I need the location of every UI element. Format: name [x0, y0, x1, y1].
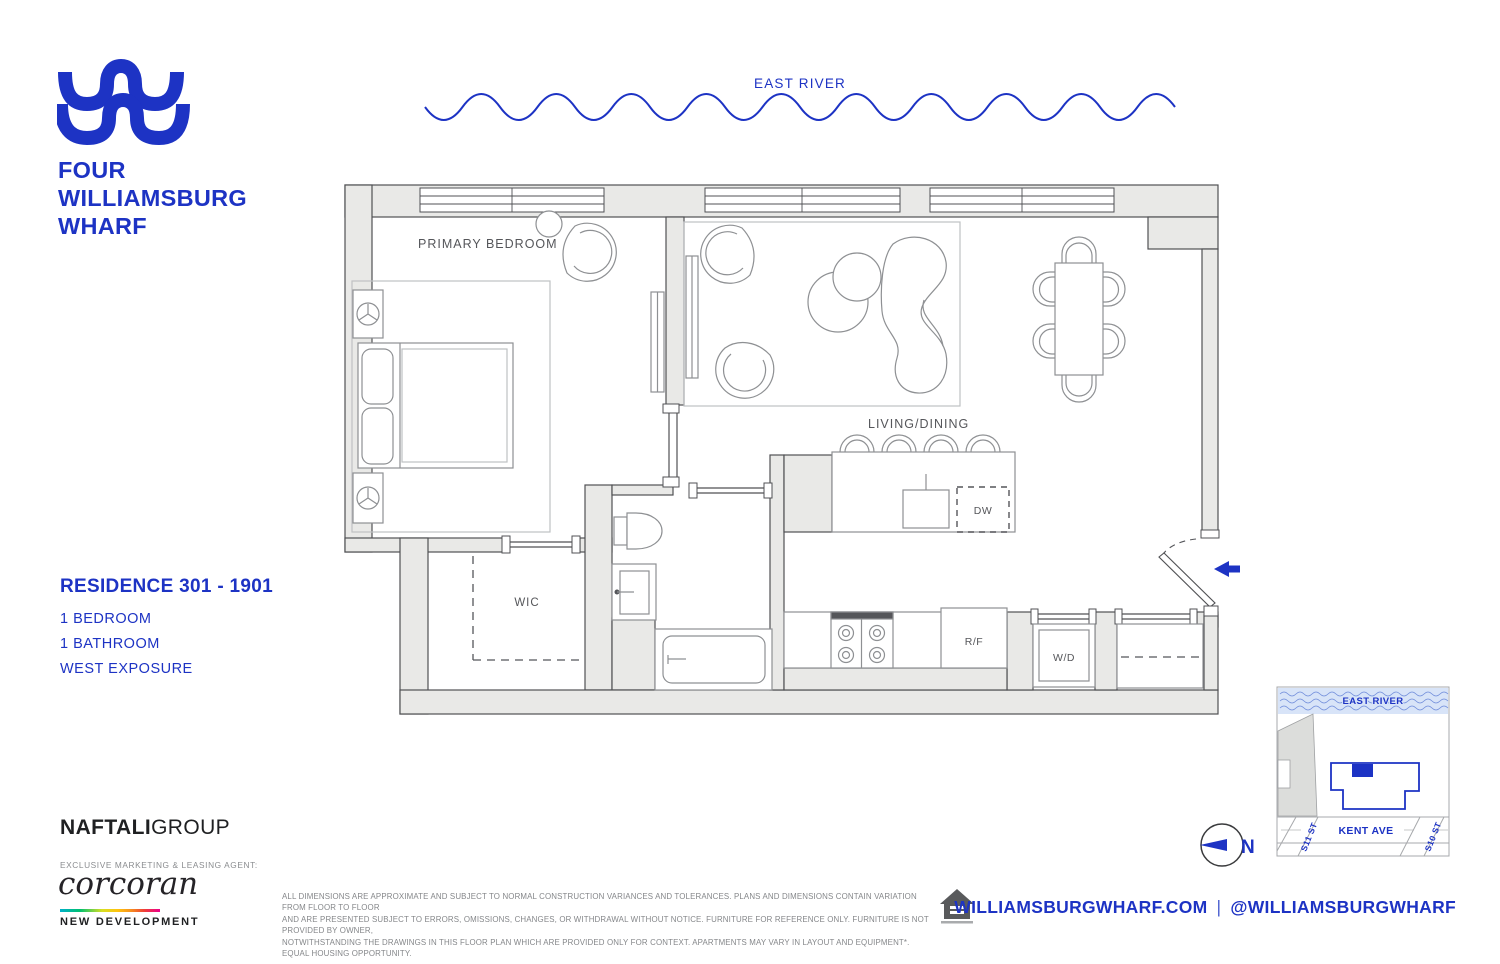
living-furniture	[684, 222, 960, 406]
map-east-river-label: EAST RIVER	[1342, 696, 1403, 707]
entry-arrow-icon	[1214, 561, 1240, 577]
window-living-2	[930, 188, 1114, 212]
developer-logo: NAFTALIGROUP	[60, 816, 230, 840]
coffee-table-small	[833, 253, 881, 301]
brand-name: FOUR WILLIAMSBURG WHARF	[58, 156, 247, 240]
bed	[358, 343, 513, 468]
disclaimer-line: AND ARE PRESENTED SUBJECT TO ERRORS, OMI…	[282, 914, 937, 937]
wall-partition-rf-wd	[1007, 612, 1033, 690]
wall-bath-southwest	[612, 618, 655, 690]
wall-bottom	[400, 690, 1218, 714]
kitchen	[784, 435, 1203, 688]
entry-door-leaf	[1159, 553, 1215, 607]
pillow	[362, 408, 393, 464]
pillow	[362, 349, 393, 404]
lounge-chair-bottom	[716, 343, 774, 399]
dining-chair	[1062, 375, 1096, 402]
brand-name-line: FOUR	[58, 156, 247, 184]
wic-door	[502, 536, 580, 553]
wall-partition-wd-closet	[1095, 612, 1117, 690]
map-kent-ave-label: KENT AVE	[1338, 825, 1393, 837]
entry-swing-arc	[1161, 539, 1196, 557]
label-dw: DW	[974, 505, 993, 517]
compass: N	[1200, 824, 1255, 866]
wd-door	[1031, 609, 1096, 624]
island-stools	[840, 435, 1000, 452]
disclaimer-line: NOTWITHSTANDING THE DRAWINGS IN THIS FLO…	[282, 937, 937, 960]
label-rf: R/F	[965, 636, 983, 648]
wall-kitchen-back	[784, 668, 1007, 690]
vanity-sink	[612, 564, 656, 620]
map-building-notch	[1278, 760, 1290, 788]
river-wave-line	[425, 94, 1175, 120]
brand-wave-logo-icon	[57, 58, 197, 153]
map-building-footprint	[1331, 763, 1419, 809]
residence-title: RESIDENCE 301 - 1901	[60, 576, 273, 598]
entry-jamb-bottom	[1204, 606, 1218, 616]
brand-name-line: WHARF	[58, 212, 247, 240]
stove	[831, 612, 893, 668]
map-unit-marker	[1352, 764, 1373, 777]
sofa	[881, 237, 946, 393]
dining-table	[1055, 263, 1103, 375]
residence-bathrooms: 1 BATHROOM	[60, 636, 273, 652]
residence-exposure: WEST EXPOSURE	[60, 661, 273, 677]
location-map: EAST RIVER KENT AVE S11 ST S10 ST	[1277, 687, 1449, 856]
label-primary-bedroom: PRIMARY BEDROOM	[418, 237, 558, 251]
website-line: WILLIAMSBURGWHARF.COM|@WILLIAMSBURGWHARF	[954, 897, 1456, 918]
bedroom-chair	[563, 223, 616, 281]
side-table	[536, 211, 562, 237]
entry-jamb-top	[1201, 530, 1219, 538]
disclaimer-line: ALL DIMENSIONS ARE APPROXIMATE AND SUBJE…	[282, 891, 937, 914]
wall-wic-east	[585, 485, 612, 690]
label-wic: WIC	[514, 597, 539, 609]
dining-chair	[1062, 237, 1096, 264]
dining-chair	[1033, 324, 1056, 358]
label-wd: W/D	[1053, 652, 1075, 664]
developer-name-bold: NAFTALI	[60, 816, 151, 839]
bedroom-furniture	[352, 211, 664, 532]
wall-divider	[666, 217, 684, 405]
window-bedroom	[420, 188, 604, 212]
hall-glass-wall	[663, 404, 679, 487]
website-separator: |	[1217, 897, 1222, 917]
agent-gradient-bar	[60, 909, 160, 912]
window-living-1	[705, 188, 900, 212]
disclaimer: ALL DIMENSIONS ARE APPROXIMATE AND SUBJE…	[282, 891, 937, 959]
bathtub	[655, 629, 772, 690]
closet-door	[1115, 609, 1197, 624]
residence-bedrooms: 1 BEDROOM	[60, 611, 273, 627]
compass-north-label: N	[1241, 837, 1255, 858]
wall-wic-west	[400, 538, 428, 714]
brand-name-line: WILLIAMSBURG	[58, 184, 247, 212]
lounge-chair-top	[701, 225, 754, 283]
entry-door	[1159, 530, 1240, 616]
social-handle[interactable]: @WILLIAMSBURGWHARF	[1230, 897, 1456, 917]
lamp-top	[357, 303, 379, 325]
lamp-bottom	[357, 487, 379, 509]
developer-name-light: GROUP	[151, 816, 230, 839]
agent-logo: corcoran	[58, 866, 198, 902]
entry-closet	[1117, 624, 1203, 688]
island-counter-block	[784, 455, 832, 532]
wall-right	[1202, 249, 1218, 531]
wall-corner-block	[1148, 217, 1218, 249]
dining-chair	[1102, 324, 1125, 358]
floorplan-flyer: PRIMARY BEDROOM LIVING/DINING WIC DW R/F…	[0, 0, 1500, 964]
bathroom-door	[689, 483, 772, 498]
dining-set	[1033, 237, 1125, 402]
wall-entry-south	[1204, 615, 1218, 690]
dining-chair	[1033, 272, 1056, 306]
east-river-header: EAST RIVER	[650, 76, 950, 91]
label-living-dining: LIVING/DINING	[868, 417, 969, 431]
residence-info: RESIDENCE 301 - 1901 1 BEDROOM 1 BATHROO…	[60, 576, 273, 686]
windows	[420, 188, 1114, 212]
website-url[interactable]: WILLIAMSBURGWHARF.COM	[954, 897, 1207, 917]
agent-division: NEW DEVELOPMENT	[60, 916, 199, 928]
toilet	[614, 513, 662, 549]
dining-chair	[1102, 272, 1125, 306]
